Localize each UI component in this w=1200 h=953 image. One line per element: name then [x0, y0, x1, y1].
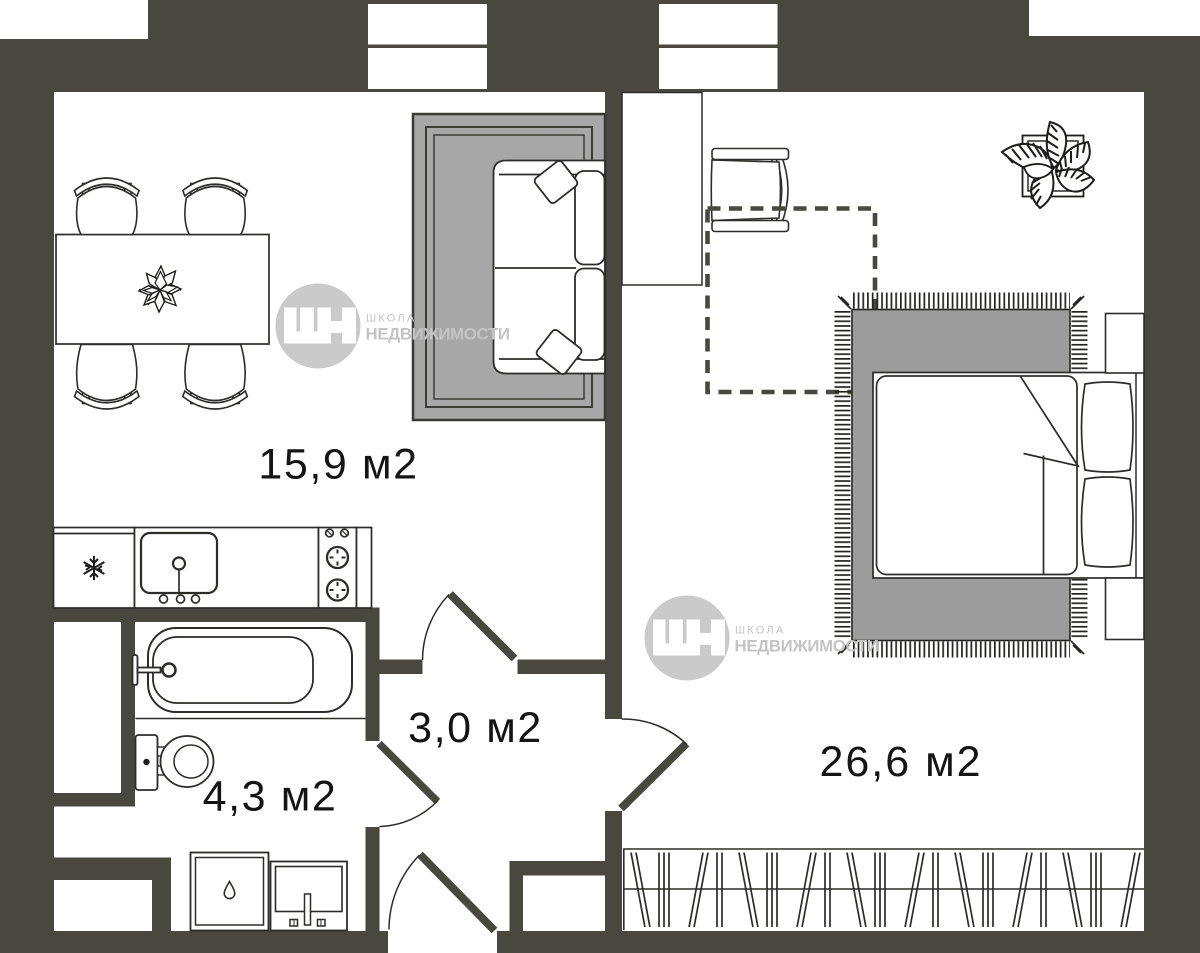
svg-text:ШКОЛА: ШКОЛА [735, 625, 785, 637]
svg-text:НЕДВИЖИМОСТИ: НЕДВИЖИМОСТИ [735, 637, 879, 656]
svg-text:3,0 м2: 3,0 м2 [408, 704, 543, 752]
svg-text:26,6 м2: 26,6 м2 [819, 738, 982, 786]
svg-text:НЕДВИЖИМОСТИ: НЕДВИЖИМОСТИ [366, 325, 510, 344]
svg-text:ШКОЛА: ШКОЛА [366, 313, 416, 325]
svg-text:4,3 м2: 4,3 м2 [203, 773, 338, 821]
svg-text:15,9 м2: 15,9 м2 [258, 441, 418, 489]
